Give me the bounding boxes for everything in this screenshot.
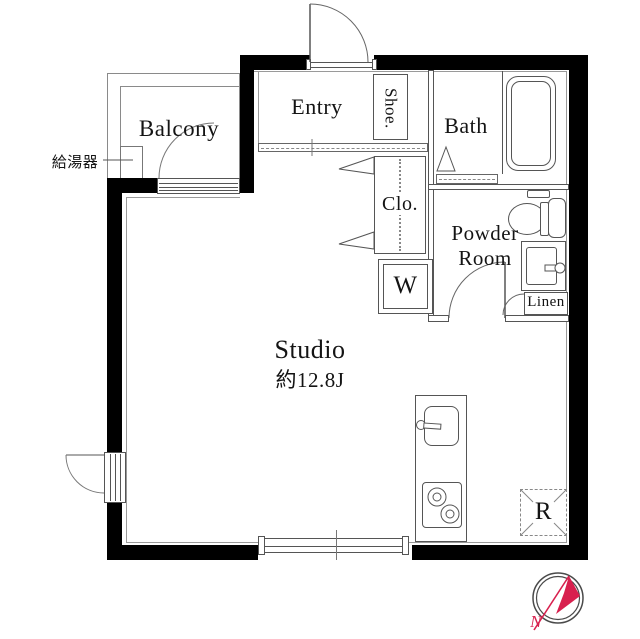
wall-powder-south-left: [428, 315, 449, 322]
wall-top-right-segment: [374, 55, 588, 70]
room-label-closet: Clo.: [374, 193, 426, 216]
powder-room-line1: Powder: [424, 221, 546, 246]
left-window-swing-arc: [66, 455, 104, 493]
powder-room-line2: Room: [424, 246, 546, 271]
entry-door-swing-arc: [310, 4, 368, 62]
fixture-label-refrigerator: R: [520, 498, 567, 526]
linen-door-swing-arc: [503, 294, 524, 315]
compass-needle-arrow: [556, 576, 580, 614]
wall-under-balcony: [107, 178, 157, 193]
toilet-tank: [548, 198, 566, 238]
floor-plan: Balcony Entry Shoe. Bath Clo. Powder Roo…: [0, 0, 640, 639]
wall-bottom-left-segment: [107, 545, 258, 560]
inner-line-under-balcony: [126, 197, 240, 198]
room-label-bath: Bath: [426, 113, 506, 139]
kitchen-stove: [422, 482, 462, 528]
room-label-shoe-text: Shoe.: [381, 88, 401, 129]
room-label-entry: Entry: [267, 94, 367, 120]
bath-threshold-strip: [436, 174, 498, 184]
bottom-window-cap-left: [258, 536, 265, 555]
wall-balcony-east: [240, 55, 254, 193]
wall-bottom-right-segment: [412, 545, 588, 560]
wall-left-lower-segment: [107, 503, 122, 560]
closet-door-triangle-bottom: [339, 232, 374, 249]
entry-sill-line-1: [310, 62, 374, 63]
kitchen-sink: [424, 406, 459, 446]
inner-line-top: [254, 71, 566, 72]
room-label-balcony: Balcony: [119, 116, 239, 142]
room-area-studio: 約12.8J: [230, 364, 390, 394]
room-label-powder-room: Powder Room: [424, 221, 546, 271]
compass-north-label: N: [525, 612, 547, 632]
left-window: [104, 452, 126, 503]
bottom-window-cap-right: [402, 536, 409, 555]
wall-right: [569, 55, 588, 560]
toilet-lid: [527, 190, 550, 198]
room-label-studio: Studio: [230, 335, 390, 365]
entry-step-strip: [258, 143, 428, 152]
entry-sill-line-2: [310, 67, 374, 68]
wall-left-upper-segment: [107, 178, 122, 452]
bathtub-inner: [511, 81, 551, 166]
inner-line-left: [126, 197, 127, 543]
water-heater-box: [120, 146, 143, 179]
balcony-window: [157, 178, 240, 194]
closet-door-triangle-top: [339, 157, 374, 174]
entry-jamb-right: [372, 59, 377, 70]
fixture-label-washer: W: [383, 272, 428, 300]
wall-powder-south-right: [505, 315, 569, 322]
inner-line-entry-west: [258, 71, 259, 143]
entry-jamb-left: [306, 59, 311, 70]
bottom-window-center-tick: [336, 530, 337, 560]
room-label-closet-text: Clo.: [381, 193, 419, 215]
fixture-label-water-heater: 給湯器: [46, 151, 104, 172]
room-label-shoe: Shoe.: [373, 76, 408, 140]
room-label-linen: Linen: [524, 294, 568, 311]
bottom-window: [261, 538, 408, 553]
bath-door-triangle: [437, 147, 455, 171]
